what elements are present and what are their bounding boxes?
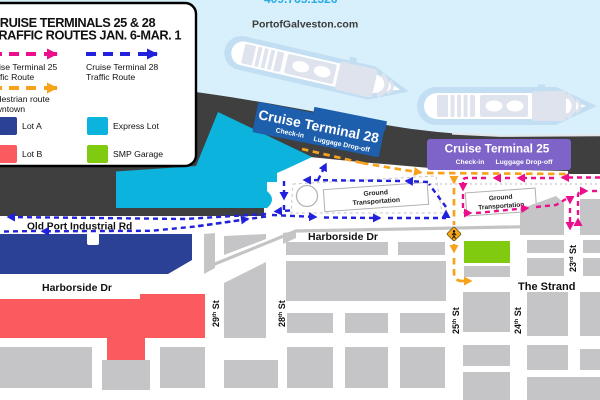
svg-text:The Strand: The Strand <box>518 281 575 293</box>
svg-text:PortofGalveston.com: PortofGalveston.com <box>252 19 358 31</box>
svg-text:Traffic Route: Traffic Route <box>86 72 135 82</box>
svg-text:Pedestrian route: Pedestrian route <box>0 94 50 104</box>
svg-text:Harborside Dr: Harborside Dr <box>308 231 378 243</box>
svg-text:Check-in: Check-in <box>456 159 485 166</box>
svg-text:Harborside Dr: Harborside Dr <box>42 282 112 294</box>
svg-text:Cruise Terminal 25: Cruise Terminal 25 <box>445 142 550 156</box>
svg-text:TRAFFIC ROUTES JAN. 6-MAR. 1: TRAFFIC ROUTES JAN. 6-MAR. 1 <box>0 28 181 43</box>
svg-text:Cruise Terminal 28: Cruise Terminal 28 <box>86 62 158 72</box>
svg-text:Express Lot: Express Lot <box>113 121 159 131</box>
svg-text:SMP Garage: SMP Garage <box>113 149 163 159</box>
svg-text:Lot B: Lot B <box>22 149 42 159</box>
svg-text:Lot A: Lot A <box>22 121 42 131</box>
svg-text:Cruise Terminal 25: Cruise Terminal 25 <box>0 62 57 72</box>
svg-text:Luggage Drop-off: Luggage Drop-off <box>495 159 553 166</box>
svg-text:409.765.1326: 409.765.1326 <box>264 0 338 6</box>
svg-text:Traffic Route: Traffic Route <box>0 72 34 82</box>
svg-text:downtown: downtown <box>0 104 25 114</box>
svg-text:Old Port Industrial Rd: Old Port Industrial Rd <box>27 222 132 233</box>
